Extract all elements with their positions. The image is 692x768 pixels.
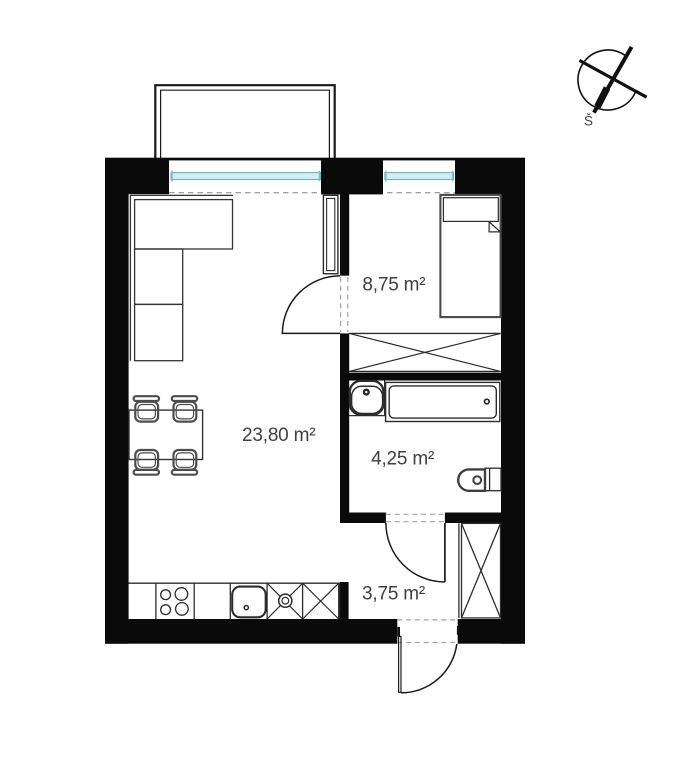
svg-text:Š: Š [584,113,593,128]
svg-text:23,80 m²: 23,80 m² [242,425,315,446]
svg-text:4,25 m²: 4,25 m² [371,449,434,470]
svg-text:3,75 m²: 3,75 m² [362,583,425,604]
svg-text:8,75 m²: 8,75 m² [362,275,425,296]
